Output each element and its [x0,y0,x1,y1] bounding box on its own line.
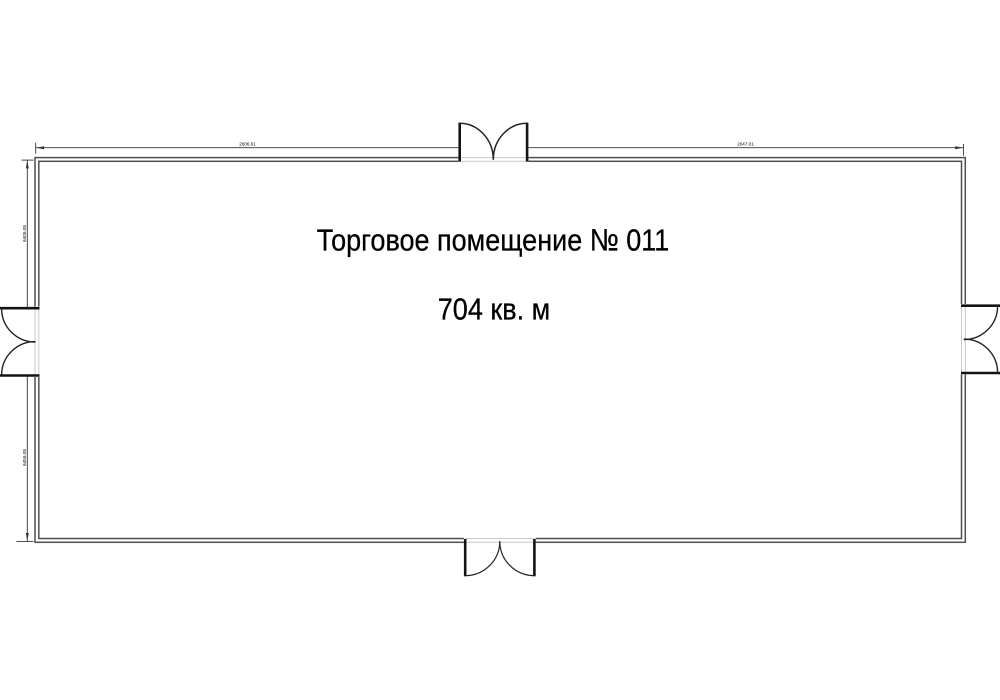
svg-text:Торговое помещение № 011: Торговое помещение № 011 [317,223,670,258]
svg-text:2006.61: 2006.61 [239,142,256,147]
svg-text:6455.08: 6455.08 [22,449,27,466]
svg-text:2047.01: 2047.01 [737,142,754,147]
svg-text:6405.08: 6405.08 [22,225,27,242]
svg-text:704 кв. м: 704 кв. м [438,292,551,327]
